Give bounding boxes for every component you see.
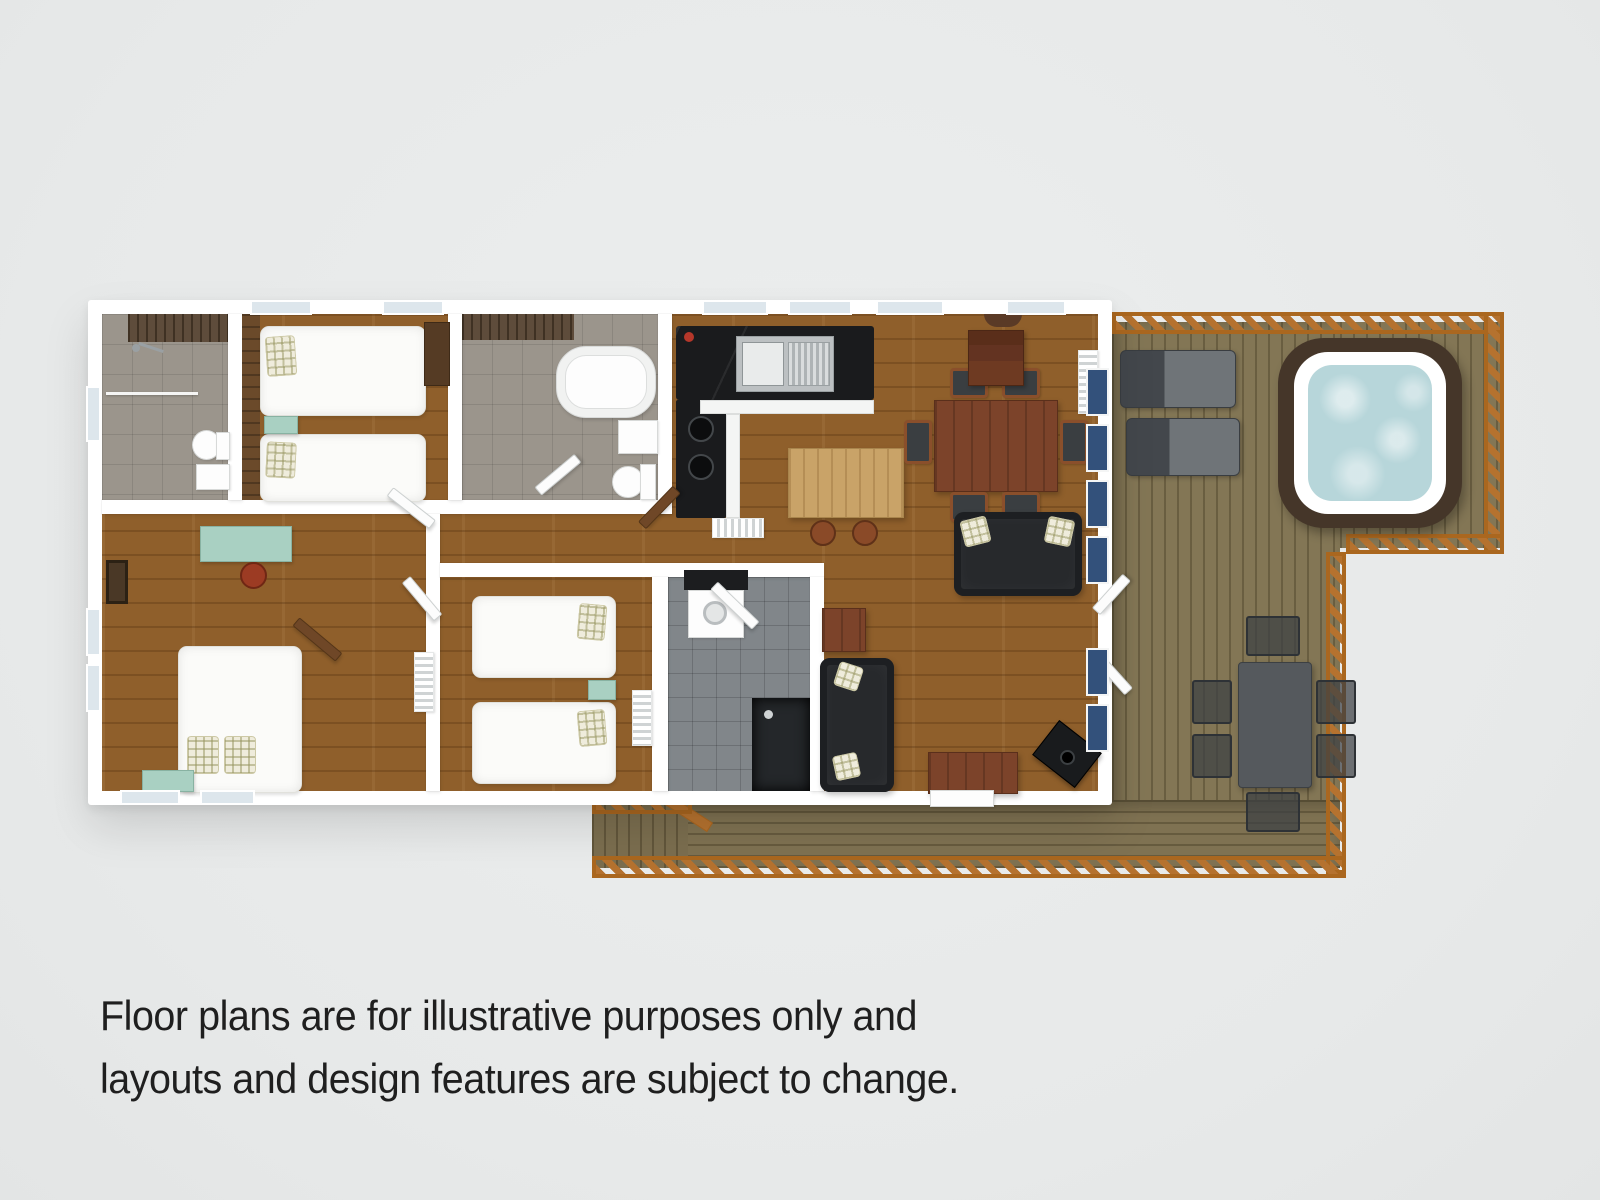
outdoor-chair [1316,680,1356,724]
bar-stool [810,520,836,546]
outdoor-chair [1316,734,1356,778]
wall-bathroom-kitchen [658,314,672,514]
deck-railing-hot-tub-right [1484,312,1504,554]
toilet-cistern [216,432,230,460]
radiator [712,518,764,538]
stool [240,562,267,589]
coffee-table [928,752,1018,794]
radiator [414,652,434,712]
headboard-wall [242,314,260,500]
glazed-door-panel [1086,480,1109,528]
glazed-door-panel [1086,536,1109,584]
outdoor-dining-table [1238,662,1312,788]
entrance-door [930,790,994,807]
bedroom-bench [142,770,194,792]
dining-table [934,400,1058,492]
induction-hob-ring [688,416,714,442]
dining-chair [1060,420,1088,464]
floor-plan-scene: Floor plans are for illustrative purpose… [0,0,1600,1200]
window [876,300,944,315]
disclaimer-text: Floor plans are for illustrative purpose… [100,984,959,1110]
radiator [632,690,652,746]
plaid-pillow [265,441,297,479]
wardrobe [424,322,450,386]
glazed-door-panel [1086,648,1109,696]
window [86,386,101,442]
kitchen-drainer [788,342,830,386]
wall-ensuite-bedroom1 [228,314,242,500]
plaid-pillow [576,603,607,641]
wall-bedroom1-bathroom [448,314,462,500]
glazed-door-panel [1086,424,1109,472]
shower-glass-screen [106,392,198,395]
plaid-pillow [576,709,607,747]
utility-dark-shower [752,698,810,791]
kettle [684,332,694,342]
dining-chair [904,420,932,464]
toilet-cistern [640,464,656,500]
window [382,300,444,315]
window [250,300,312,315]
window [788,300,852,315]
bathroom-sink [618,420,658,454]
induction-hob-ring [688,454,714,480]
wall-bedroom2-utility [652,577,668,791]
shower-head-icon [764,710,773,719]
hot-tub-water [1308,365,1432,501]
wall-hall [102,500,672,514]
stove-flue [1060,750,1075,765]
washing-machine-door [703,601,727,625]
wall-bedroom2-top [440,563,824,577]
disclaimer-line-2: layouts and design features are subject … [100,1047,959,1110]
dressing-table [200,526,292,562]
deck-railing-top [1112,312,1504,334]
window [86,608,101,656]
glazed-door-panel [1086,368,1109,416]
window [200,790,255,805]
outdoor-chair [1246,792,1300,832]
sun-lounger [1120,350,1236,408]
kitchen-island [788,448,904,518]
deck-railing-hot-tub-bottom [1346,534,1504,554]
outdoor-chair [1192,680,1232,724]
wall-picture [106,560,128,604]
window [702,300,768,315]
coffee-table [822,608,866,652]
disclaimer-line-1: Floor plans are for illustrative purpose… [100,984,959,1047]
bedside-table [264,416,298,434]
bar-stool [852,520,878,546]
glazed-door-panel [1086,704,1109,752]
kitchen-sink-bowl [742,342,784,386]
plaid-pillow [187,736,219,774]
bedside-table [588,680,616,700]
bathroom-sink [196,464,230,490]
plaid-cushion [1043,515,1075,547]
plaid-cushion [832,752,862,782]
bathroom-feature-wall [462,314,574,340]
sideboard [968,330,1024,386]
outdoor-chair [1192,734,1232,778]
plaid-pillow [224,736,256,774]
deck-railing-front [592,856,1346,878]
kitchen-cabinet-fronts [700,400,874,414]
ensuite-feature-wall [128,314,230,342]
window [1006,300,1066,315]
plaid-pillow [265,335,298,377]
freestanding-bathtub [556,346,656,418]
window [120,790,180,805]
kitchen-cabinet-fronts [726,414,740,518]
window [86,664,101,712]
outdoor-chair [1246,616,1300,656]
sun-lounger [1126,418,1240,476]
